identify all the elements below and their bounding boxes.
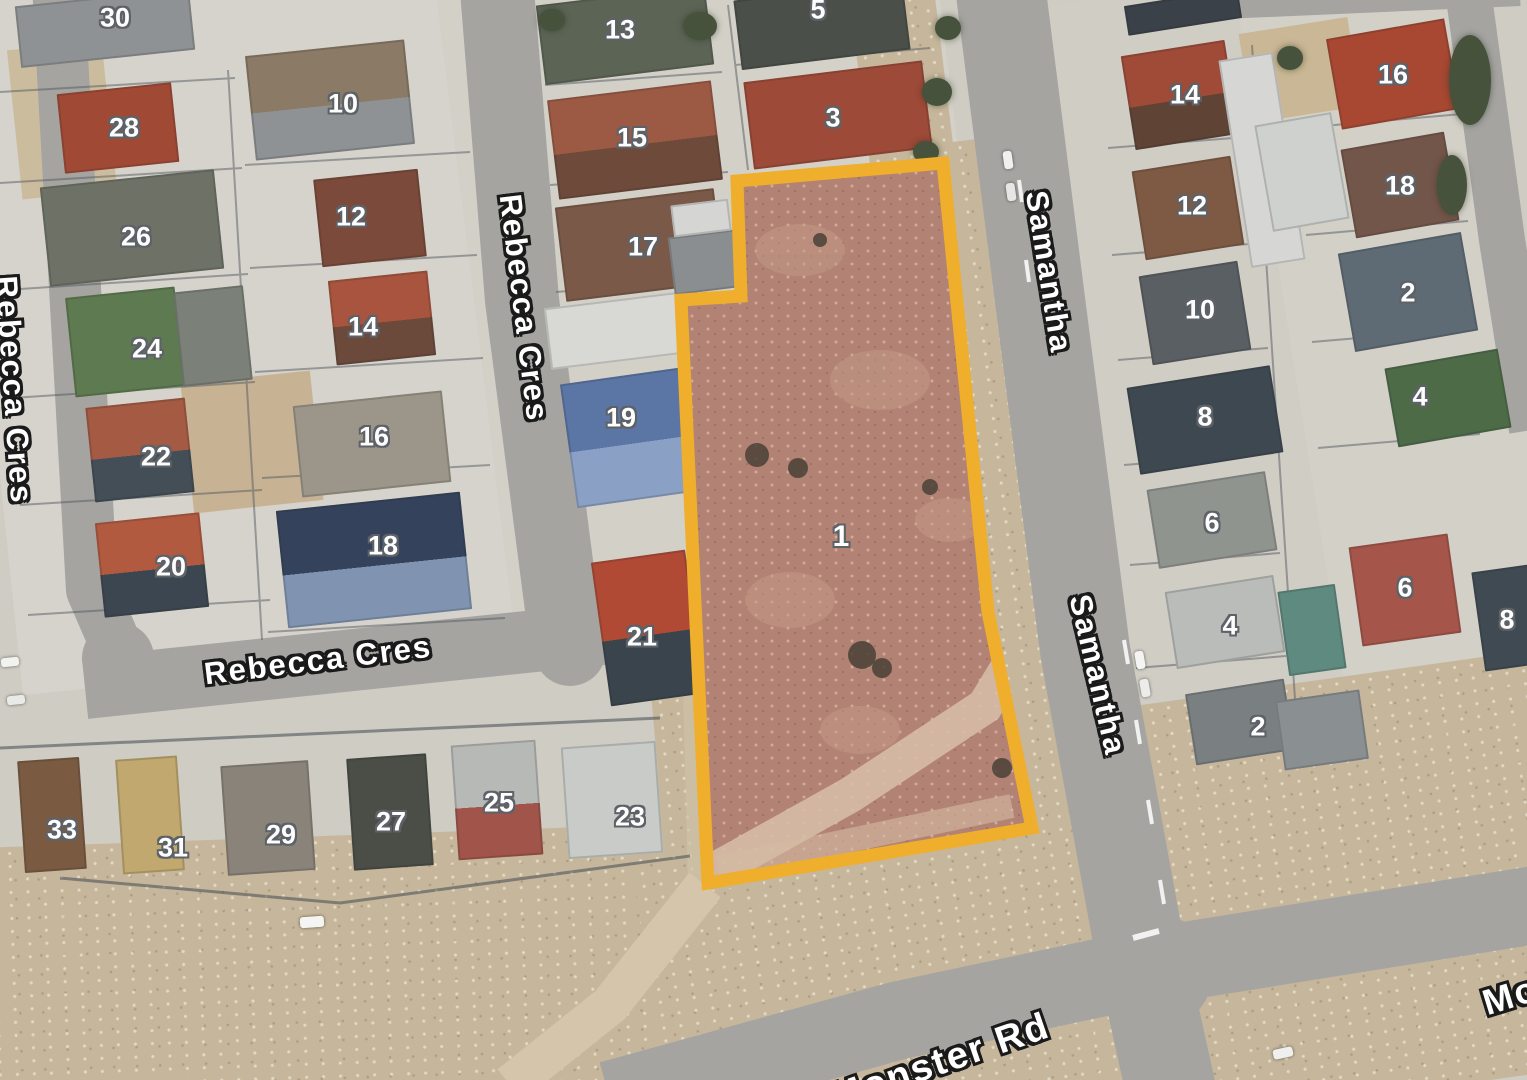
street-label-samantha-north: Samantha bbox=[1021, 188, 1077, 355]
parcel-number-t3: 3 bbox=[825, 105, 840, 132]
parcel-number-r14: 14 bbox=[1170, 82, 1200, 109]
parcel-number-e19: 19 bbox=[606, 405, 636, 432]
parcel-number-r12: 12 bbox=[1177, 193, 1207, 220]
parcel-number-e21: 21 bbox=[627, 624, 657, 651]
parcel-number-n15: 15 bbox=[617, 125, 647, 152]
parcel-number-w22: 22 bbox=[141, 444, 171, 471]
parcel-number-w28: 28 bbox=[109, 115, 139, 142]
street-label-rebecca-cres-west: Rebecca Cres bbox=[0, 275, 37, 506]
parcel-number-w24: 24 bbox=[132, 336, 162, 363]
parcel-number-m14: 14 bbox=[348, 314, 378, 341]
parcel-number-r8: 8 bbox=[1197, 404, 1212, 431]
parcel-number-f16: 16 bbox=[1378, 62, 1408, 89]
satellite-map[interactable]: Rebecca CresRebecca CresRebecca CresSama… bbox=[0, 0, 1527, 1080]
parcel-number-s27: 27 bbox=[376, 809, 406, 836]
parcel-number-m18: 18 bbox=[368, 533, 398, 560]
parcel-number-f8: 8 bbox=[1499, 607, 1514, 634]
highlighted-parcel-number: 1 bbox=[833, 522, 850, 552]
street-label-samantha-south: Samantha bbox=[1064, 592, 1131, 759]
parcel-number-f4: 4 bbox=[1412, 384, 1427, 411]
parcel-number-m10: 10 bbox=[328, 91, 358, 118]
parcel-number-s29: 29 bbox=[266, 822, 296, 849]
parcel-number-r6: 6 bbox=[1204, 510, 1219, 537]
street-label-monster-rd-east: Monster Rd bbox=[1479, 923, 1527, 1021]
parcel-number-w26: 26 bbox=[121, 224, 151, 251]
parcel-number-w20: 20 bbox=[156, 554, 186, 581]
parcel-number-s23: 23 bbox=[615, 804, 645, 831]
parcel-number-w30: 30 bbox=[100, 5, 130, 32]
street-label-rebecca-cres-mid: Rebecca Cres bbox=[202, 631, 433, 690]
street-label-rebecca-cres-north: Rebecca Cres bbox=[495, 192, 554, 423]
parcel-number-s25: 25 bbox=[484, 790, 514, 817]
parcel-number-s33: 33 bbox=[47, 817, 77, 844]
parcel-number-f18: 18 bbox=[1385, 173, 1415, 200]
street-label-monster-rd-south: Monster Rd bbox=[826, 1007, 1055, 1080]
parcel-number-r10: 10 bbox=[1185, 297, 1215, 324]
parcel-number-n17: 17 bbox=[628, 234, 658, 261]
parcel-number-m12: 12 bbox=[336, 204, 366, 231]
parcel-number-r4: 4 bbox=[1222, 613, 1237, 640]
labels-layer: Rebecca CresRebecca CresRebecca CresSama… bbox=[0, 0, 1527, 1080]
parcel-number-s31: 31 bbox=[158, 835, 188, 862]
parcel-number-f2: 2 bbox=[1400, 280, 1415, 307]
parcel-number-r2: 2 bbox=[1250, 714, 1265, 741]
parcel-number-m16: 16 bbox=[359, 424, 389, 451]
parcel-number-t5: 5 bbox=[810, 0, 825, 24]
parcel-number-f6: 6 bbox=[1397, 575, 1412, 602]
parcel-number-n13: 13 bbox=[605, 17, 635, 44]
